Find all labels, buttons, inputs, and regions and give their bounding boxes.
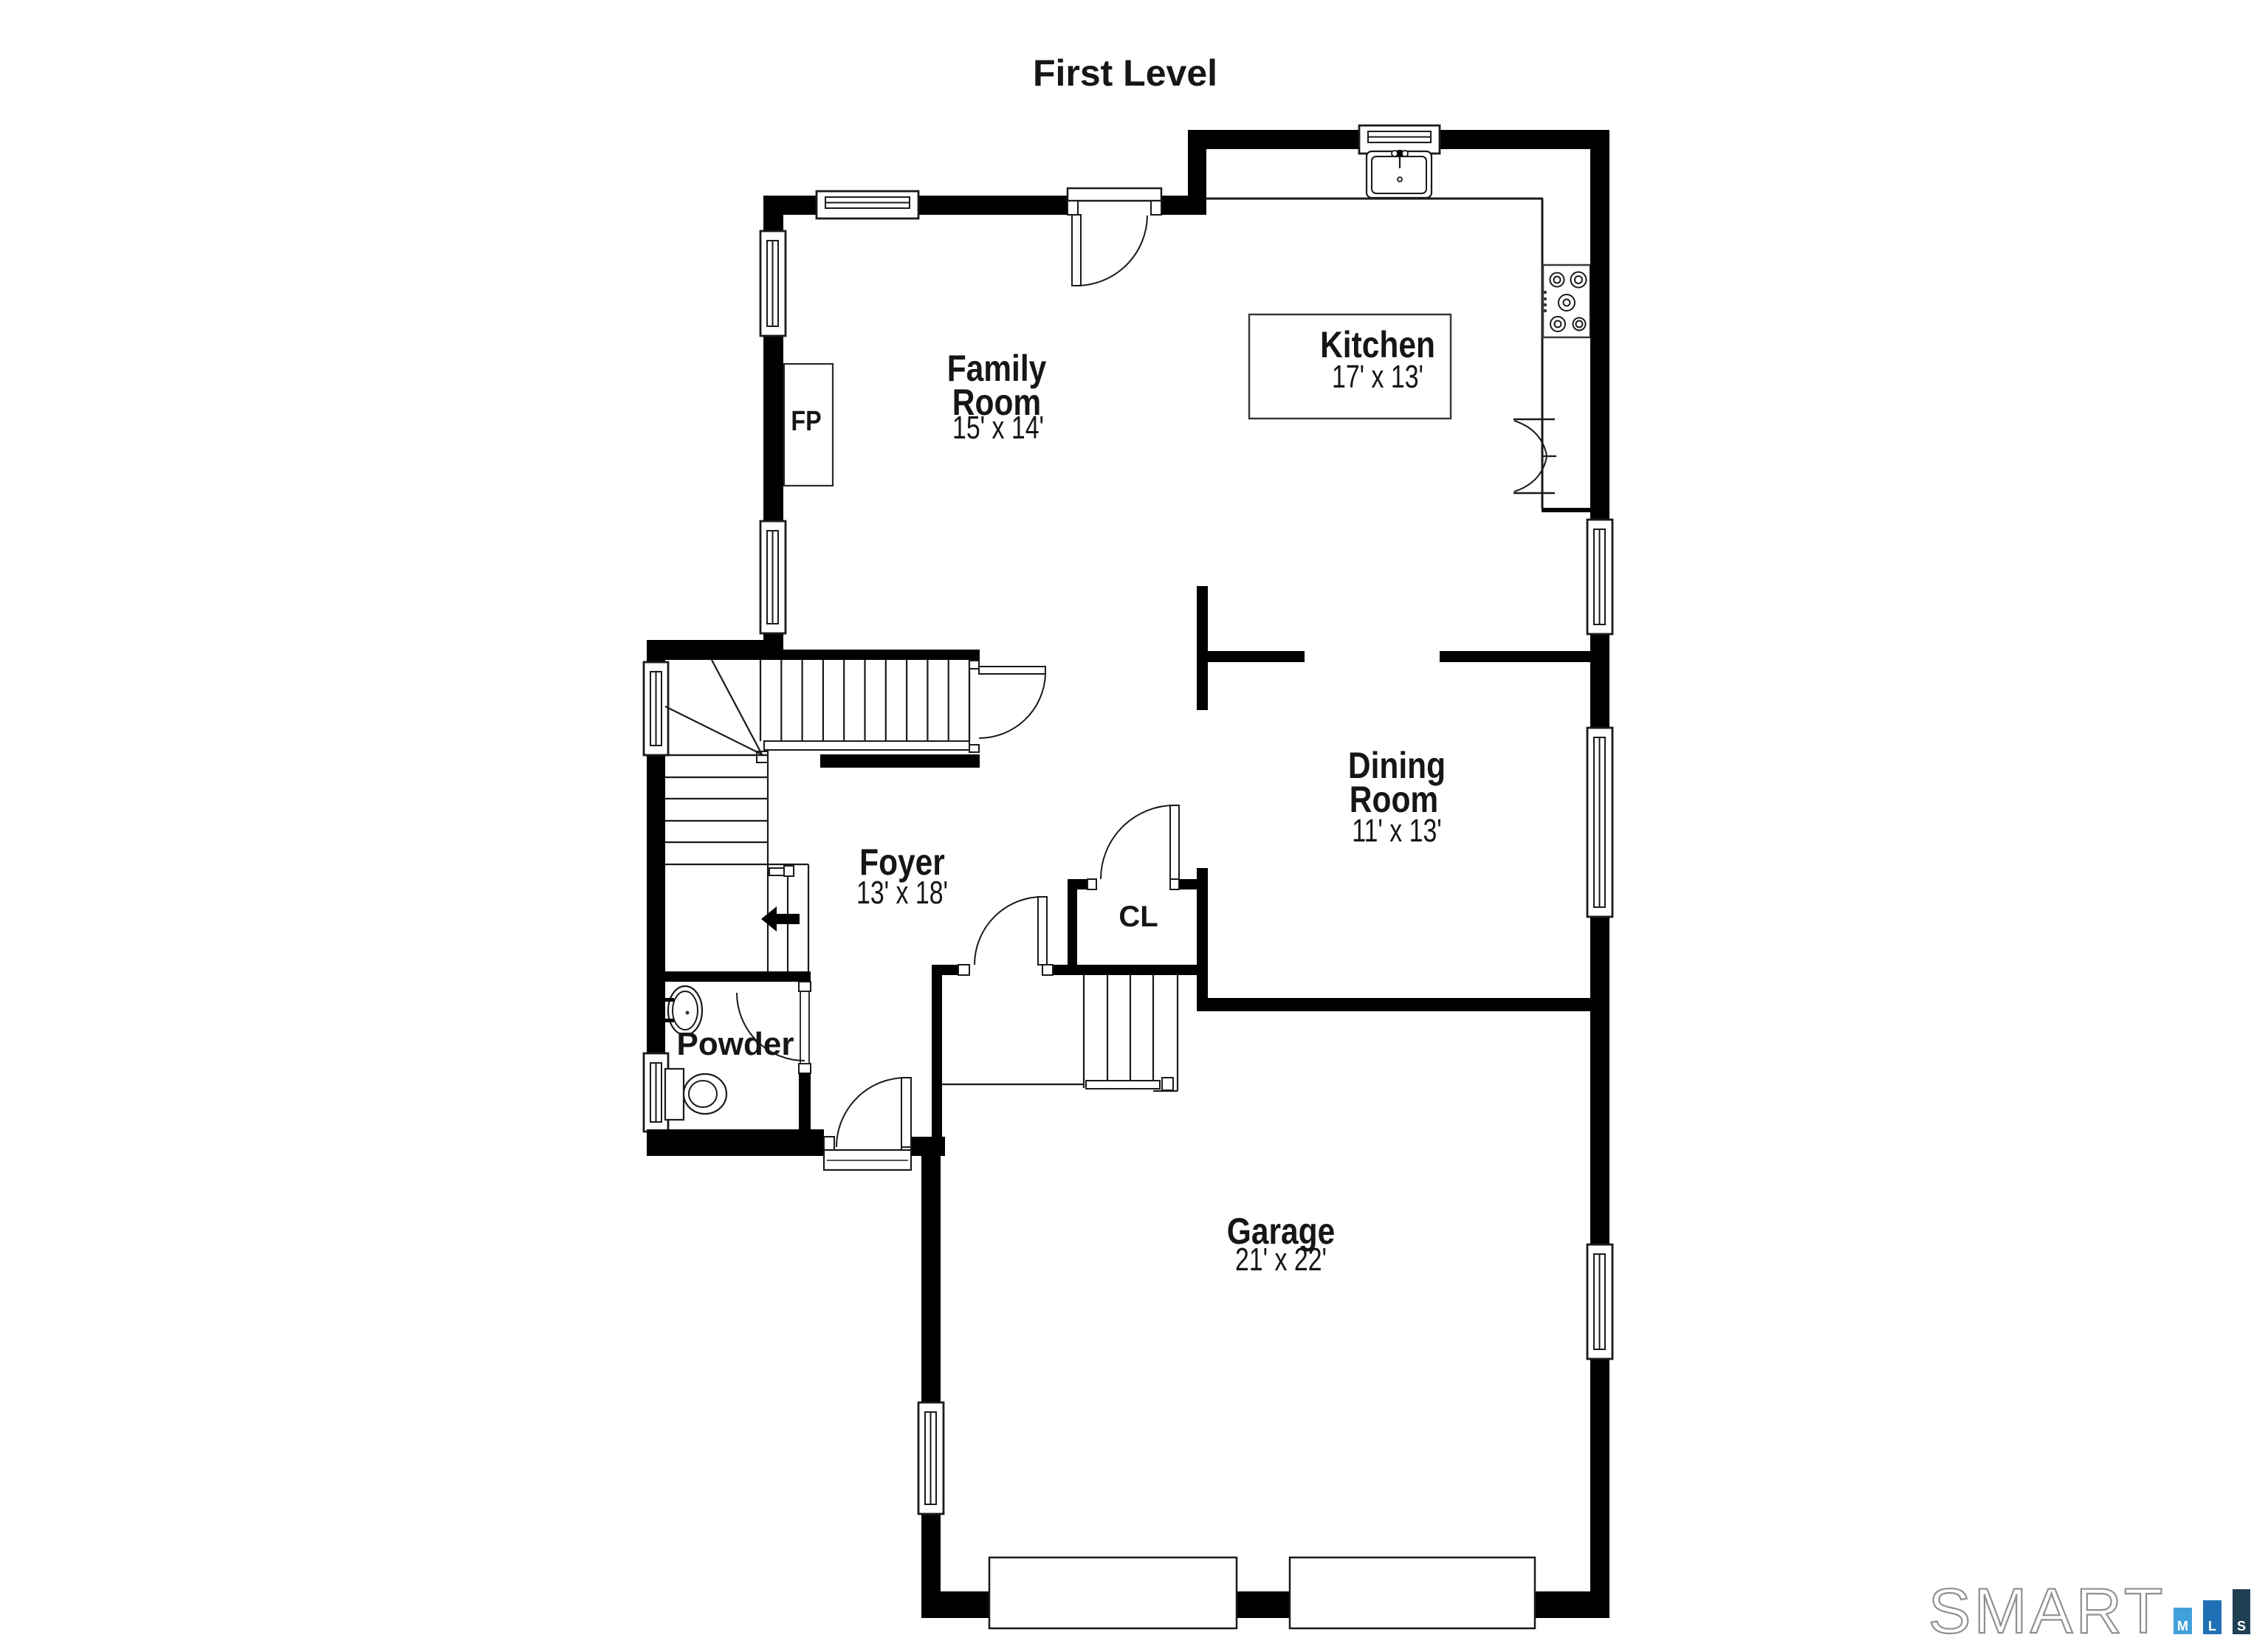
svg-text:15' x 14': 15' x 14'	[952, 410, 1044, 446]
svg-text:13' x 18': 13' x 18'	[856, 875, 948, 911]
svg-text:Powder: Powder	[677, 1026, 794, 1062]
svg-text:M: M	[2177, 1619, 2188, 1633]
svg-text:21' x 22': 21' x 22'	[1235, 1242, 1327, 1278]
svg-text:11' x 13': 11' x 13'	[1352, 813, 1442, 849]
svg-text:FP: FP	[791, 406, 821, 437]
svg-text:First Level: First Level	[1033, 52, 1217, 94]
svg-text:CL: CL	[1118, 901, 1158, 933]
svg-text:L: L	[2208, 1619, 2216, 1633]
svg-text:S: S	[2237, 1619, 2246, 1633]
svg-text:17' x 13': 17' x 13'	[1332, 359, 1423, 395]
svg-text:SMART: SMART	[1928, 1576, 2166, 1647]
